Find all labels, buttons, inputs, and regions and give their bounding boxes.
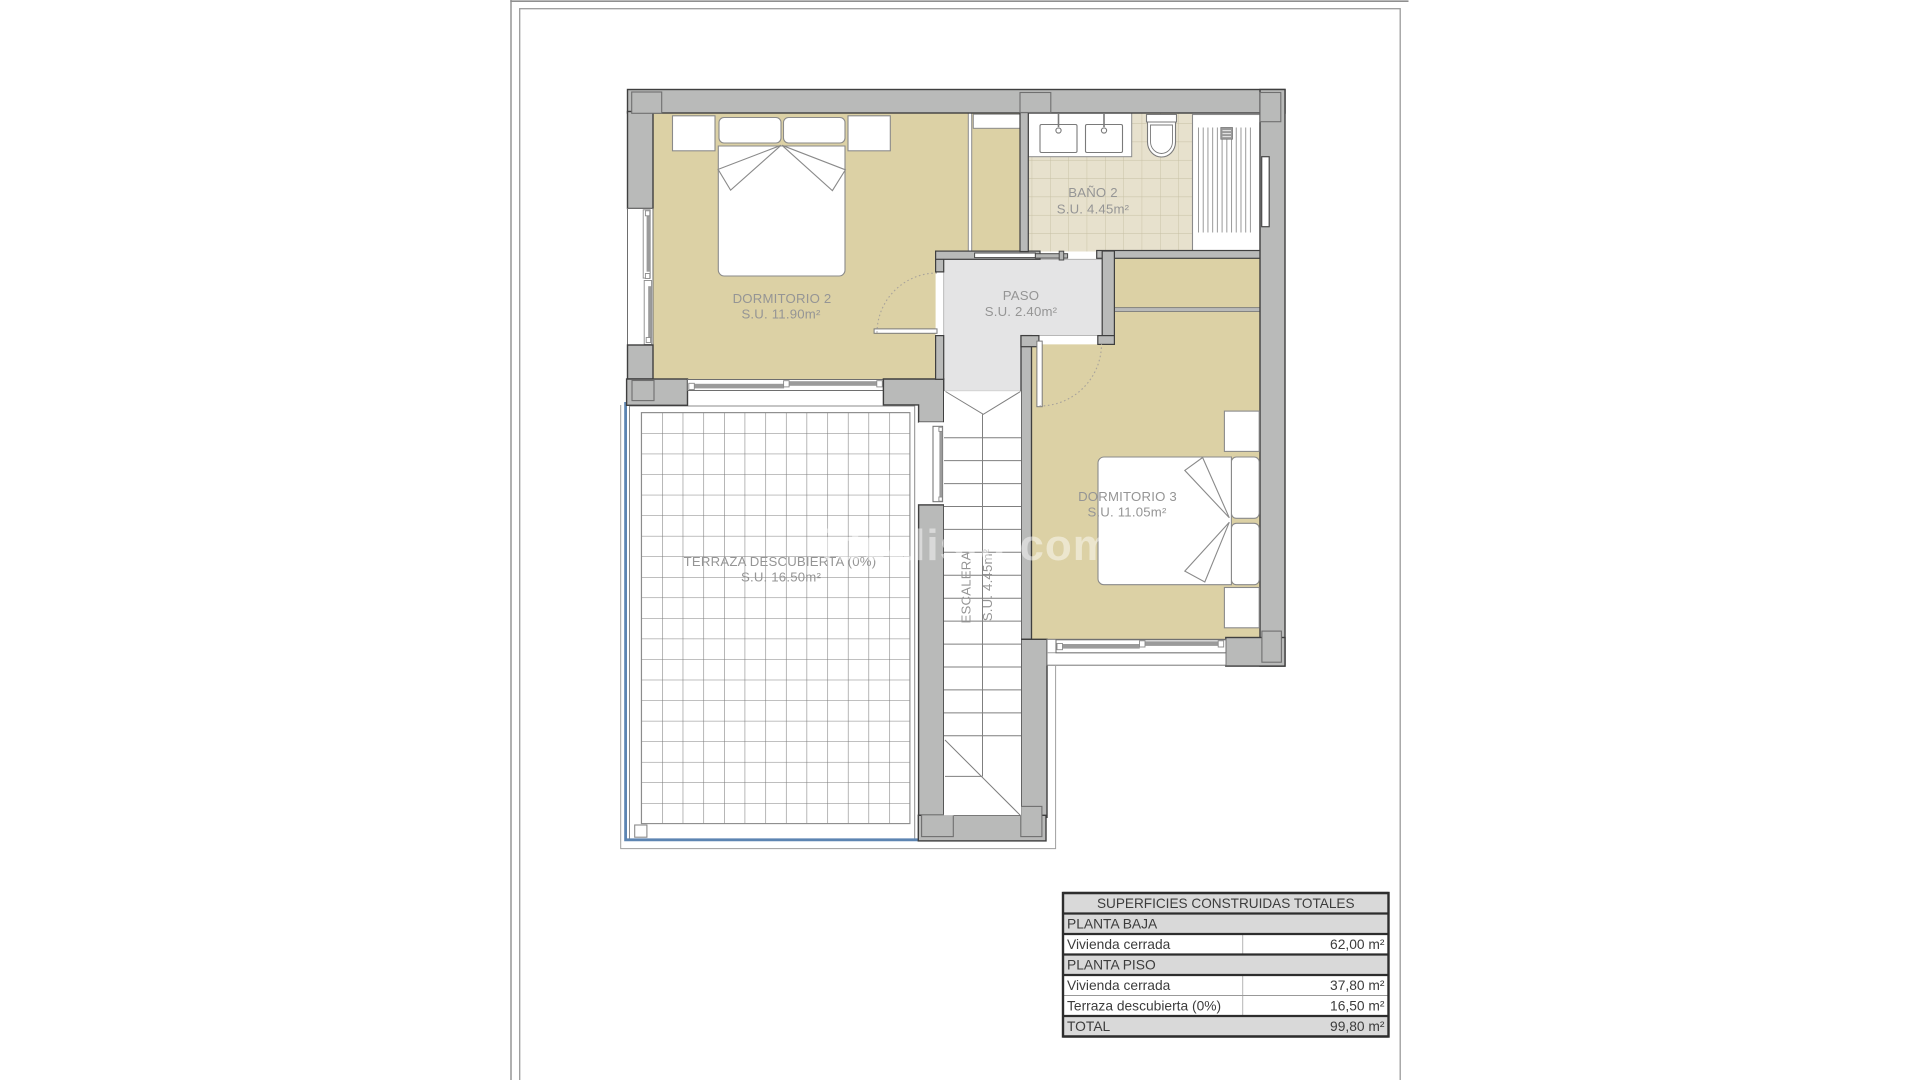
svg-text:S.U. 4.45m²: S.U. 4.45m² [1057, 202, 1130, 217]
svg-text:S.U. 2.40m²: S.U. 2.40m² [985, 304, 1058, 319]
svg-text:TOTAL: TOTAL [1067, 1019, 1111, 1034]
svg-text:PLANTA PISO: PLANTA PISO [1067, 958, 1156, 973]
svg-text:Vivienda cerrada: Vivienda cerrada [1067, 937, 1171, 952]
svg-text:Terraza descubierta (0%): Terraza descubierta (0%) [1067, 999, 1221, 1014]
svg-text:99,80 m²: 99,80 m² [1330, 1019, 1385, 1034]
svg-text:BAÑO 2: BAÑO 2 [1068, 185, 1118, 200]
svg-text:S.U. 16.50m²: S.U. 16.50m² [741, 570, 821, 585]
svg-text:62,00 m²: 62,00 m² [1330, 937, 1385, 952]
svg-text:Vivienda cerrada: Vivienda cerrada [1067, 978, 1171, 993]
svg-text:DORMITORIO 3: DORMITORIO 3 [1078, 489, 1177, 504]
svg-text:DORMITORIO 2: DORMITORIO 2 [733, 291, 832, 306]
svg-text:idealista.com: idealista.com [821, 521, 1113, 570]
svg-text:SUPERFICIES CONSTRUIDAS TOTALE: SUPERFICIES CONSTRUIDAS TOTALES [1097, 896, 1355, 911]
svg-text:16,50 m²: 16,50 m² [1330, 999, 1385, 1014]
svg-text:S.U. 11.05m²: S.U. 11.05m² [1087, 505, 1167, 520]
svg-text:PASO: PASO [1003, 288, 1039, 303]
svg-text:S.U. 11.90m²: S.U. 11.90m² [741, 307, 821, 322]
svg-text:PLANTA BAJA: PLANTA BAJA [1067, 917, 1158, 932]
svg-text:37,80 m²: 37,80 m² [1330, 978, 1385, 993]
